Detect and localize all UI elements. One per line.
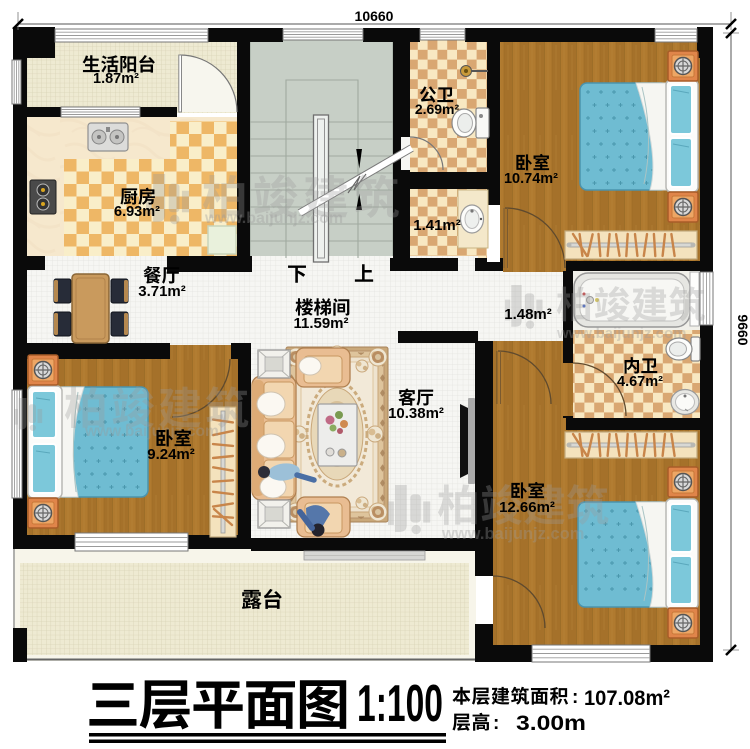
svg-text:1.87m²: 1.87m² (93, 71, 139, 87)
svg-text::: : (493, 713, 499, 734)
svg-text:10660: 10660 (355, 8, 394, 24)
svg-text::: : (572, 687, 578, 708)
svg-text:6.93m²: 6.93m² (114, 204, 160, 220)
svg-text:9.24m²: 9.24m² (147, 446, 195, 463)
svg-text:10.38m²: 10.38m² (388, 405, 444, 422)
svg-text:107.08m²: 107.08m² (584, 686, 670, 710)
svg-text:12.66m²: 12.66m² (499, 499, 555, 516)
svg-text:2.69m²: 2.69m² (415, 101, 460, 117)
svg-text:3.00m: 3.00m (516, 711, 586, 735)
svg-text:1.41m²: 1.41m² (413, 217, 461, 234)
svg-text:www.baijunjz.com: www.baijunjz.com (84, 423, 219, 440)
svg-text:10.74m²: 10.74m² (504, 171, 558, 187)
svg-text:www.baijunjz.com: www.baijunjz.com (204, 210, 343, 227)
svg-text:9660: 9660 (735, 314, 750, 345)
svg-text:www.baijunjz.com: www.baijunjz.com (441, 525, 584, 543)
svg-text:11.59m²: 11.59m² (293, 315, 348, 332)
svg-text:3.71m²: 3.71m² (138, 283, 186, 300)
svg-text:4.67m²: 4.67m² (617, 374, 663, 390)
svg-text:www.baijunjz.com: www.baijunjz.com (556, 325, 686, 342)
svg-text:1.48m²: 1.48m² (504, 306, 552, 323)
svg-text:1:100: 1:100 (357, 675, 443, 733)
